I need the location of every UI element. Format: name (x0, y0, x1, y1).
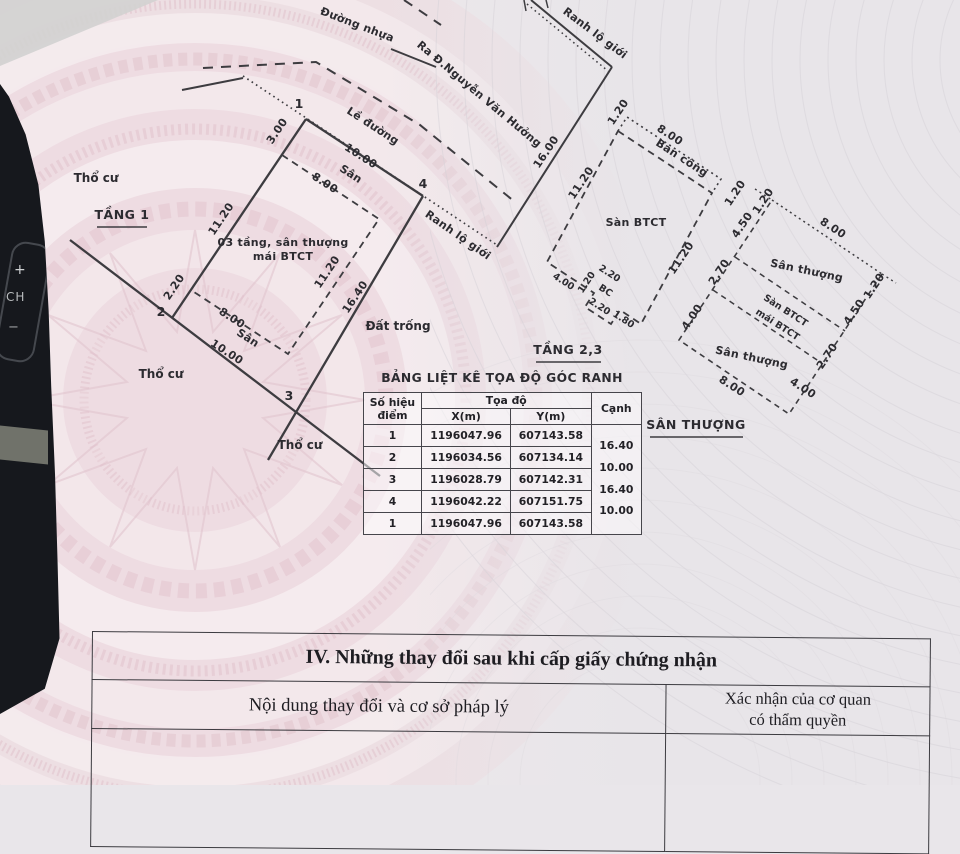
cell-y: 607143.58 (511, 425, 591, 447)
coord-table-title: BẢNG LIỆT KÊ TỌA ĐỘ GÓC RANH (381, 369, 623, 385)
roof-heading: SÂN THƯỢNG (646, 417, 746, 432)
dashboard-bar (0, 425, 48, 464)
edge-value: 10.00 (592, 457, 641, 479)
section4-block: IV. Những thay đổi sau khi cấp giấy chứn… (90, 631, 931, 854)
cell-point: 4 (364, 491, 422, 513)
edge-value: 16.40 (592, 435, 641, 457)
house-desc-line2: mái BTCT (253, 250, 314, 263)
section4-left-header: Nội dung thay đổi và cơ sở pháp lý (92, 680, 666, 734)
cell-y: 607143.58 (511, 513, 591, 535)
col-header-coords: Tọa độ (421, 393, 591, 409)
cell-point: 3 (364, 469, 422, 491)
button-minus: − (8, 320, 19, 335)
cell-x: 1196047.96 (421, 425, 510, 447)
cell-y: 607142.31 (511, 469, 591, 491)
edge-value: 16.40 (592, 478, 641, 500)
floor1-heading: TẦNG 1 (95, 205, 150, 222)
cell-point: 1 (364, 425, 422, 447)
corner-point-4: 4 (419, 176, 428, 191)
col-header-y: Y(m) (511, 409, 591, 425)
neighbor-left-label: Thổ cư (74, 170, 119, 185)
cell-y: 607134.14 (511, 447, 591, 469)
col-header-edge: Cạnh (591, 393, 641, 425)
section4-right-empty (665, 734, 930, 854)
photo-of-land-certificate: Đường nhựa Ra Đ.Nguyễn Văn Hưởng Ranh lộ… (0, 0, 960, 785)
table-row: 1 1196047.96 607143.58 16.40 10.00 16.40… (364, 425, 642, 447)
coordinate-table: Số hiệu điểm Tọa độ Cạnh X(m) Y(m) 1 119… (363, 392, 642, 535)
cell-edges: 16.40 10.00 16.40 10.00 (591, 425, 641, 535)
cell-x: 1196034.56 (421, 447, 510, 469)
slab-label: Sàn BTCT (606, 216, 667, 229)
section4-left-empty (91, 729, 666, 852)
cell-y: 607151.75 (511, 491, 591, 513)
section4-title: IV. Những thay đổi sau khi cấp giấy chứn… (92, 632, 930, 687)
cell-x: 1196028.79 (421, 469, 510, 491)
cell-x: 1196042.22 (421, 491, 510, 513)
corner-point-3: 3 (285, 388, 294, 403)
coordinate-table-block: Số hiệu điểm Tọa độ Cạnh X(m) Y(m) 1 119… (363, 392, 642, 535)
section4-right-header: Xác nhận của cơ quan có thẩm quyền (666, 685, 930, 736)
col-header-point: Số hiệu điểm (364, 393, 422, 425)
floor23-heading: TẦNG 2,3 (533, 340, 602, 357)
vacant-lot-label: Đất trống (365, 319, 430, 333)
section4-table: IV. Những thay đổi sau khi cấp giấy chứn… (90, 631, 931, 854)
neighbor-bottom-left-label: Thổ cư (139, 366, 184, 381)
cell-x: 1196047.96 (421, 513, 510, 535)
button-plus: + (14, 262, 26, 278)
cell-point: 2 (364, 447, 422, 469)
edge-value: 10.00 (592, 500, 641, 522)
corner-point-2: 2 (157, 304, 166, 319)
cell-point: 1 (364, 513, 422, 535)
col-header-x: X(m) (421, 409, 510, 425)
neighbor-bottom-label: Thổ cư (278, 437, 323, 452)
corner-point-1: 1 (295, 96, 304, 111)
button-ch-label: CH (6, 290, 25, 304)
house-desc-line1: 03 tầng, sân thượng (217, 236, 348, 249)
